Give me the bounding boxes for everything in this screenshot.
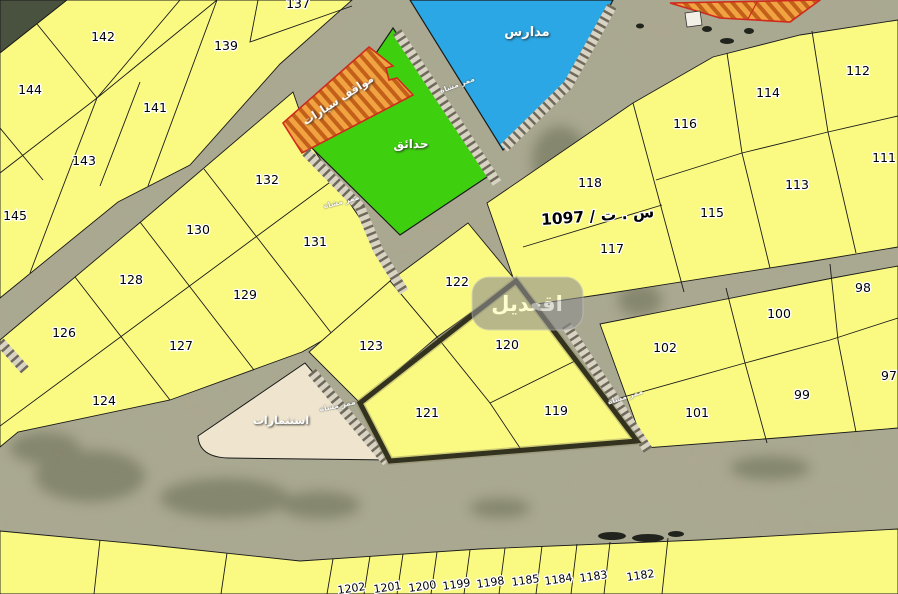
parcel-number-121: 121: [415, 405, 439, 420]
parcel-number-131: 131: [303, 234, 327, 249]
zone-label-investments: استثمارات: [253, 414, 309, 427]
parcel-number-1200: 1200: [408, 578, 438, 594]
parcel-number-122: 122: [445, 274, 469, 289]
watermark: اقعديل: [472, 277, 583, 330]
parcel-number-99: 99: [794, 387, 810, 402]
parcel-number-126: 126: [52, 325, 76, 340]
parcel-number-100: 100: [767, 306, 791, 321]
parcel-number-118: 118: [578, 175, 602, 190]
parcel-number-142: 142: [91, 29, 115, 44]
parcel-number-139: 139: [214, 38, 238, 53]
parcel-number-145: 145: [3, 208, 27, 223]
parcel-number-114: 114: [756, 85, 780, 100]
parcel-number-130: 130: [186, 222, 210, 237]
parcel-number-137: 137: [286, 0, 310, 11]
parcel-number-117: 117: [600, 241, 624, 256]
parcel-number-111: 111: [872, 150, 896, 165]
parcel-number-129: 129: [233, 287, 257, 302]
parcel-number-112: 112: [846, 63, 870, 78]
parcel-number-128: 128: [119, 272, 143, 287]
parcel-number-115: 115: [700, 205, 724, 220]
parcel-number-116: 116: [673, 116, 697, 131]
small-white-structure: [685, 11, 702, 27]
parcel-number-101: 101: [685, 405, 709, 420]
parcel-number-124: 124: [92, 393, 116, 408]
parcel-number-123: 123: [359, 338, 383, 353]
zone-label-parks: حدائق: [393, 137, 428, 151]
parcel-number-97: 97: [881, 368, 897, 383]
parcel-number-144: 144: [18, 82, 42, 97]
parcel-number-132: 132: [255, 172, 279, 187]
cadastral-map-viewport: 1371421391441411431451321301311281291261…: [0, 0, 898, 594]
parcel-number-143: 143: [72, 153, 96, 168]
watermark-text: اقعديل: [491, 292, 563, 316]
parcel-number-120: 120: [495, 337, 519, 352]
parcel-number-119: 119: [544, 403, 568, 418]
cadastral-map: 1371421391441411431451321301311281291261…: [0, 0, 898, 594]
parcel-number-113: 113: [785, 177, 809, 192]
parcel-number-127: 127: [169, 338, 193, 353]
parcel-number-141: 141: [143, 100, 167, 115]
zone-label-schools: مدارس: [504, 25, 549, 40]
parcel-number-102: 102: [653, 340, 677, 355]
parcel-number-98: 98: [855, 280, 871, 295]
